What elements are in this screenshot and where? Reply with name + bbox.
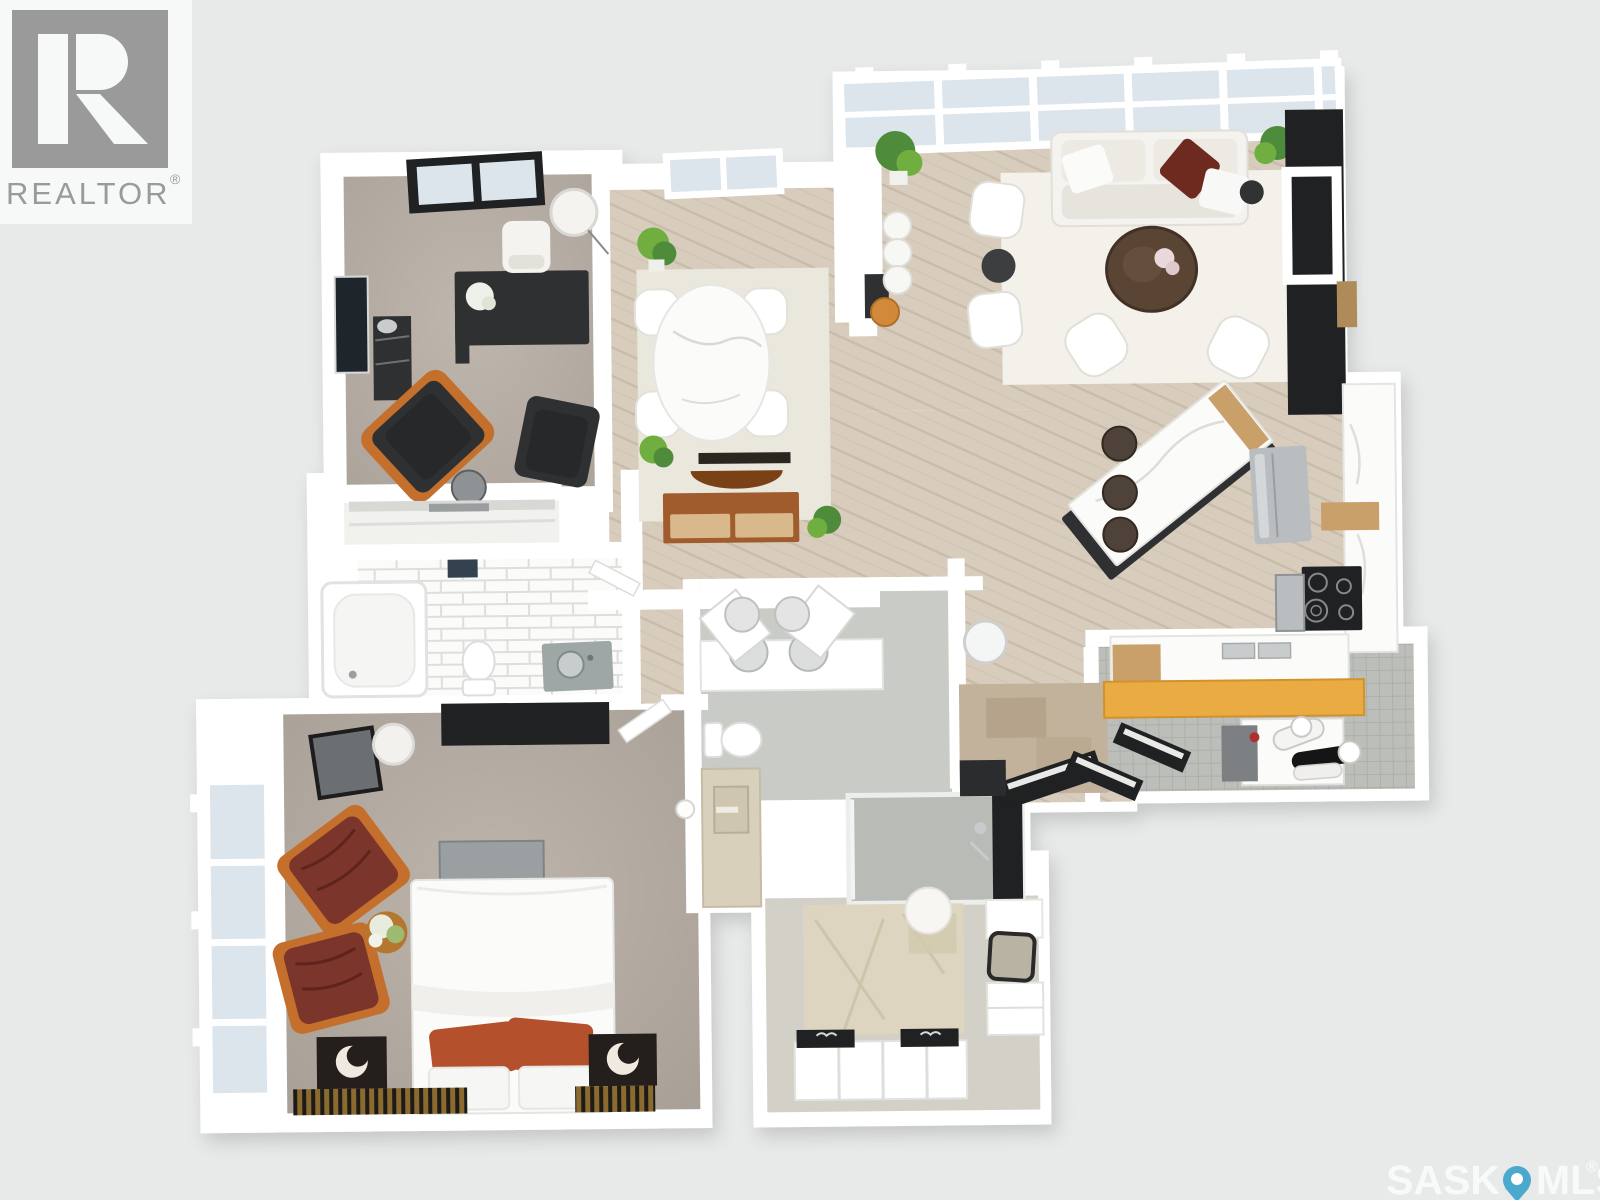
wood-shelf [1337,281,1357,327]
watermark-prefix: SASK [1386,1157,1500,1200]
orange-stool [871,298,899,326]
pouf [905,887,951,933]
logo-text: REALTOR [6,176,171,211]
sink [1222,643,1254,658]
laundry-counter [1104,679,1364,718]
ceiling-light [676,800,694,818]
runner-rug [293,1088,467,1116]
floor-plan-canvas: REALTOR ® SASK MLS ® [0,0,1600,1200]
cooktop [1302,566,1363,631]
white-stool [884,266,912,294]
bath-art [448,559,478,577]
office-window [406,151,545,213]
white-stool [883,212,911,240]
beige-counter [702,768,761,907]
bedroom-floor-lamp [373,724,413,764]
microwave [1276,575,1305,631]
entry-cabinet [960,760,1006,796]
bath-vanity [542,641,614,692]
cubby-top [797,1029,855,1048]
white-stool [883,239,911,267]
cubby-top [900,1028,958,1047]
bar-stool [1102,426,1136,460]
logo-registered: ® [170,171,181,187]
desk-panel [455,303,470,363]
storage-bin [725,597,759,631]
wood-cabinet [1321,502,1379,531]
dining-window [663,148,785,199]
dining-room [634,226,841,544]
bar-stool [1103,475,1137,509]
nightstand [589,1034,658,1087]
desk-chair [502,221,551,273]
realtor-logo: REALTOR ® [0,0,192,224]
nightstand [317,1036,388,1089]
closet-mirror [988,933,1035,982]
ensuite-toilet [704,722,761,757]
floor-lamp [551,189,597,235]
sask-mls-watermark: SASK MLS ® [1386,1157,1600,1200]
sofa [1051,130,1250,226]
marble-dining-table [653,284,771,441]
side-table [452,470,486,504]
coffee-table [1106,227,1197,312]
wall-art [335,277,369,373]
floor-plan-screenshot: REALTOR ® SASK MLS ® [0,0,1600,1200]
fridge [1249,445,1312,544]
bathtub [322,582,427,697]
round-sink [557,651,584,678]
watermark-registered: ® [1586,1159,1598,1176]
shower [848,794,1023,904]
sink [1258,643,1290,658]
shower-glass [852,799,853,899]
round-mirror [964,621,1006,663]
runner-rug [575,1086,655,1113]
storage-bin [775,597,809,631]
bed [411,878,615,1114]
washer-dryer [1221,715,1361,785]
bar-stool [1103,517,1137,551]
wood-console [663,492,800,543]
console-tray [698,452,790,464]
toilet [462,641,495,695]
bedroom-mirror [310,727,381,798]
bedroom-window-band [190,773,279,1104]
dresser [441,702,609,746]
